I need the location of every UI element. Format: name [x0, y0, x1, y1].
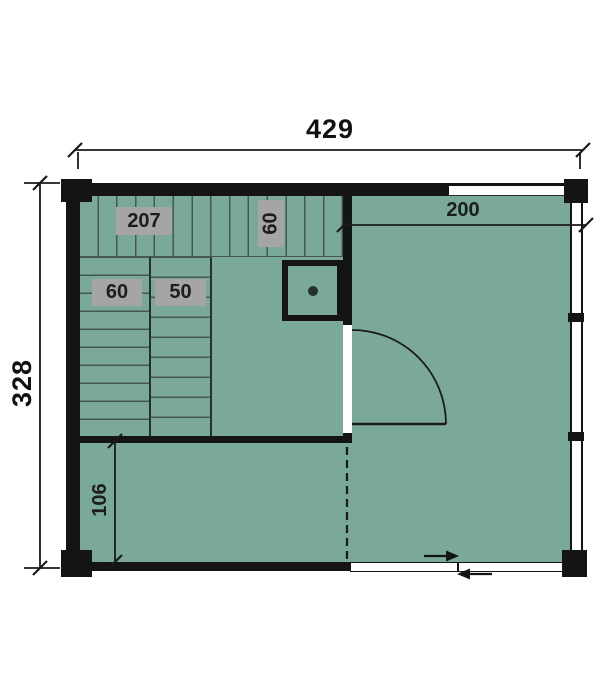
corner-post-bottom-left: [61, 550, 92, 577]
left-bench-width-tag: 60: [92, 279, 142, 306]
door-threshold: [343, 325, 352, 433]
overall-height-dimension: 328: [7, 333, 35, 433]
bottom-wall: [72, 562, 350, 571]
tick-328-bottom: [33, 561, 47, 575]
top-bench-length-tag: 207: [116, 207, 172, 235]
stove: [282, 260, 343, 321]
top-wall: [66, 183, 449, 196]
interior-wall-horizontal: [80, 436, 352, 443]
top-bench-depth-value: 60: [260, 212, 283, 234]
right-bench-width-tag: 50: [155, 279, 206, 306]
left-wall: [66, 183, 80, 571]
right-bench-width-value: 50: [169, 281, 191, 304]
corner-post-bottom-right: [562, 550, 587, 577]
corner-post-top-left: [61, 179, 92, 202]
right-wall-mullion-upper: [568, 313, 584, 322]
floor-plan: 207 60 60 50 429 328 200 106: [0, 0, 600, 700]
interior-wall-vertical-upper: [343, 196, 352, 325]
top-bench-depth-tag: 60: [258, 200, 284, 247]
left-bench-width-value: 60: [106, 281, 128, 304]
lower-room-depth-dimension: 106: [89, 475, 111, 525]
top-bench-length-value: 207: [127, 210, 160, 233]
overall-width-dimension: 429: [280, 114, 380, 144]
stove-dot-icon: [308, 286, 318, 296]
corner-post-top-right: [564, 179, 588, 203]
right-room-width-dimension: 200: [428, 199, 498, 223]
tick-328-top: [33, 176, 47, 190]
right-glass-wall: [570, 196, 583, 562]
right-wall-mullion-lower: [568, 432, 584, 441]
tick-429-left: [68, 143, 82, 157]
top-window: [449, 183, 566, 196]
sliding-door-split: [457, 562, 459, 572]
tick-429-right: [576, 143, 590, 157]
